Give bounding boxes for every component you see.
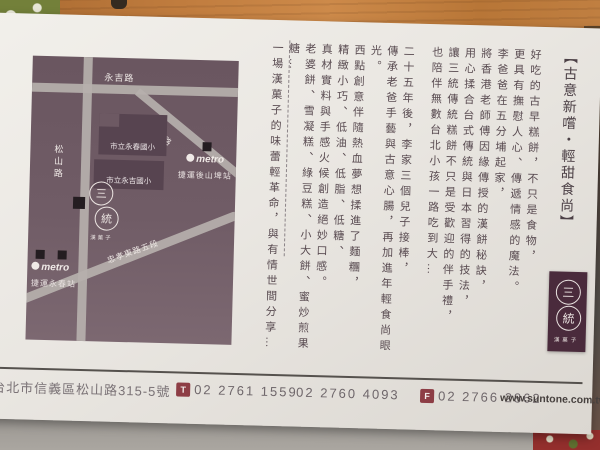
brand-logo-caption: 漢菓子	[548, 335, 586, 344]
location-map: 永吉路 松山路 中坡北路 忠孝東路五段 市立永春國小 市立永吉國小 三 統 漢菓…	[25, 56, 238, 345]
building-yongchun-elementary: 市立永春國小	[98, 113, 167, 156]
flyer-card: 永吉路 松山路 中坡北路 忠孝東路五段 市立永春國小 市立永吉國小 三 統 漢菓…	[0, 12, 600, 434]
photo-of-flyer: { "title": "【古意新嚐・輕甜食尚】", "story": { "li…	[0, 0, 600, 450]
station-label-yongchun: 捷運永春站	[31, 278, 76, 290]
road-label-yongji: 永吉路	[104, 70, 134, 84]
store-marker-icon	[73, 197, 85, 209]
fax-icon: F	[420, 389, 434, 403]
metro-logo-icon: metro	[31, 262, 69, 274]
building-label: 市立永吉國小	[106, 175, 151, 187]
metro-logo-icon: metro	[186, 154, 224, 166]
tel-icon: T	[176, 382, 190, 396]
station-exit-marker	[58, 250, 67, 259]
road-label-songshan: 松山路	[52, 144, 66, 180]
phone-number-2: 02 2760 4093	[296, 385, 400, 403]
phone-number-1: 02 2761 1559	[194, 382, 298, 400]
store-logo-caption: 漢菓子	[90, 233, 113, 242]
station-exit-marker	[202, 142, 211, 151]
store-logo-circle-bottom: 統	[94, 206, 119, 231]
metro-dot-icon	[186, 154, 194, 162]
station-exit-marker	[36, 250, 45, 259]
brand-logo-circle-bottom: 統	[556, 305, 582, 331]
store-logo-circle-top: 三	[89, 181, 114, 206]
dark-mark-on-table	[111, 0, 127, 9]
brand-logo-circle-top: 三	[556, 279, 582, 305]
metro-dot-icon	[31, 262, 39, 270]
station-label-houshanpi: 捷運後山埤站	[178, 169, 232, 181]
building-label: 市立永春國小	[110, 141, 155, 153]
store-address: 台北市信義區松山路315-5號	[0, 377, 171, 401]
brand-banner: 三 統 漢菓子	[547, 271, 587, 352]
metro-wordmark: metro	[196, 154, 224, 166]
building-notch	[99, 113, 119, 127]
story-text-block: 【古意新嚐・輕甜食尚】 好吃的古早糕餅，不只是食物， 更具有撫慰人心、傳遞情感的…	[285, 42, 582, 381]
metro-wordmark: metro	[41, 262, 69, 274]
